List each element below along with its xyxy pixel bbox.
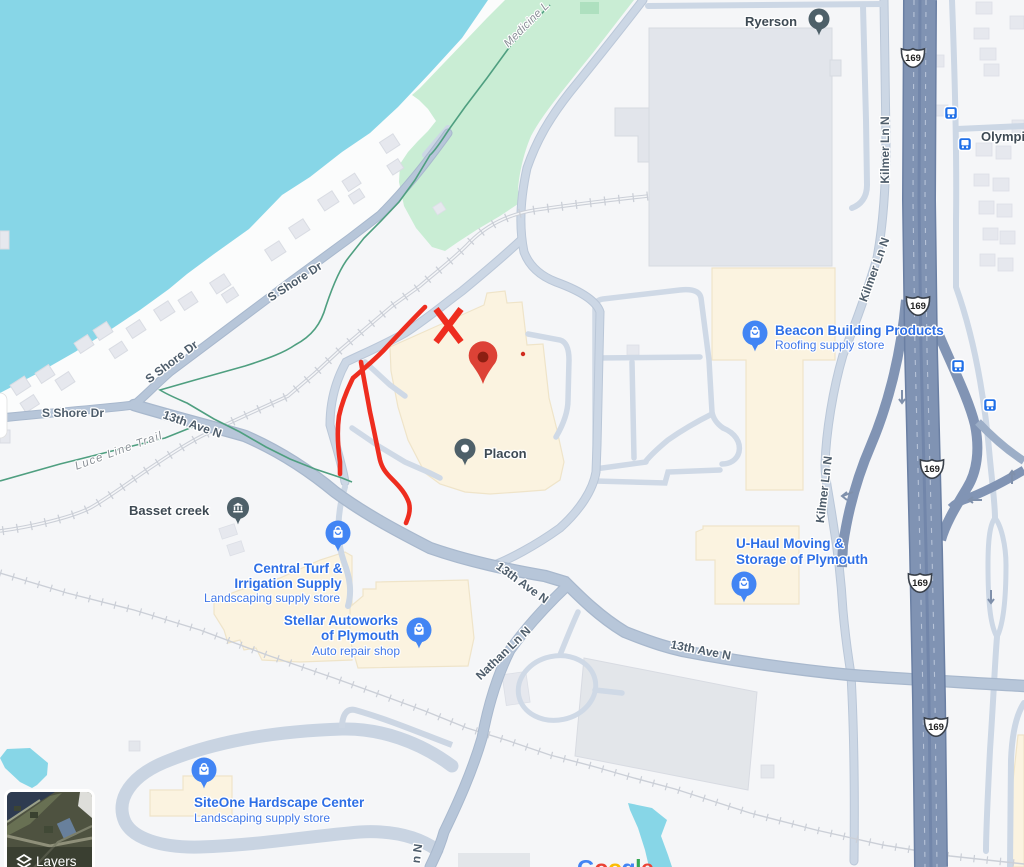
svg-text:of Plymouth: of Plymouth bbox=[321, 628, 399, 643]
svg-text:Kilmer Ln N: Kilmer Ln N bbox=[878, 116, 892, 183]
svg-text:Auto repair shop: Auto repair shop bbox=[312, 644, 400, 658]
svg-text:Basset creek: Basset creek bbox=[129, 503, 210, 518]
svg-text:Beacon Building Products: Beacon Building Products bbox=[775, 323, 944, 338]
svg-text:Roofing supply store: Roofing supply store bbox=[775, 338, 885, 352]
svg-text:Olympi: Olympi bbox=[981, 129, 1024, 144]
svg-text:SiteOne Hardscape Center: SiteOne Hardscape Center bbox=[194, 795, 365, 810]
svg-text:Irrigation Supply: Irrigation Supply bbox=[234, 576, 342, 591]
svg-text:Ryerson: Ryerson bbox=[745, 14, 797, 29]
svg-text:Central Turf &: Central Turf & bbox=[253, 561, 342, 576]
svg-text:Storage of Plymouth: Storage of Plymouth bbox=[736, 552, 868, 567]
svg-text:Stellar Autoworks: Stellar Autoworks bbox=[284, 613, 398, 628]
svg-text:S Shore Dr: S Shore Dr bbox=[42, 406, 104, 420]
svg-text:n N: n N bbox=[409, 843, 426, 864]
svg-text:Layers: Layers bbox=[36, 854, 77, 867]
svg-text:Google: Google bbox=[577, 855, 653, 867]
svg-text:Landscaping supply store: Landscaping supply store bbox=[204, 591, 340, 605]
svg-text:Landscaping supply store: Landscaping supply store bbox=[194, 811, 330, 825]
svg-text:U-Haul Moving &: U-Haul Moving & bbox=[736, 536, 844, 551]
svg-text:Placon: Placon bbox=[484, 446, 527, 461]
